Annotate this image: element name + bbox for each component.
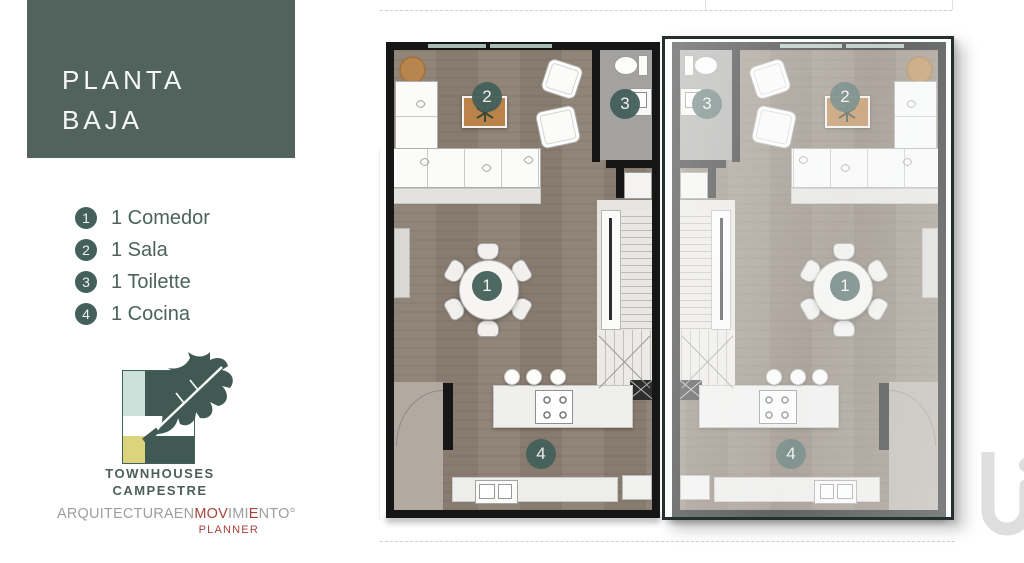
round-rug — [399, 56, 426, 84]
toilette-wall — [606, 160, 652, 168]
wall-bottom — [386, 510, 660, 518]
brand-planner-label: PLANNER — [57, 524, 263, 536]
marker-toilette: 3 — [610, 89, 640, 119]
legend-label: 1 Sala — [111, 239, 168, 262]
shaft-x-brace — [630, 380, 652, 400]
legend-item: 3 1 Toilette — [75, 266, 210, 298]
stair-railing-slit — [609, 218, 612, 320]
legend-label: 1 Comedor — [111, 207, 210, 230]
kitchen-sink-basin — [498, 484, 512, 499]
marker-cocina: 4 — [526, 439, 556, 469]
leaf-icon — [136, 350, 246, 442]
kitchen-sink-basin — [479, 484, 495, 499]
pendant-light — [550, 369, 566, 385]
toilette-wall-stub — [616, 168, 624, 198]
armchair — [534, 104, 581, 149]
legend-number-badge: 2 — [75, 239, 97, 261]
glass-overlay — [662, 36, 954, 520]
legend-number-badge: 3 — [75, 271, 97, 293]
legend: 1 1 Comedor 2 1 Sala 3 1 Toilette 4 1 Co… — [75, 202, 210, 330]
brand-segment: ARQUITECTURAEN — [57, 506, 194, 522]
construction-tick — [379, 150, 380, 520]
brand-segment: MOV — [194, 506, 228, 522]
brand-segment: IMI — [228, 506, 249, 522]
legend-label: 1 Cocina — [111, 303, 190, 326]
construction-tick — [705, 0, 706, 10]
pendant-light — [526, 369, 542, 385]
brand-segment: E — [249, 506, 259, 522]
title-block: PLANTA BAJA — [27, 0, 295, 158]
legend-item: 2 1 Sala — [75, 234, 210, 266]
legend-number-badge: 1 — [75, 207, 97, 229]
construction-tick — [952, 0, 953, 10]
title-line-2: BAJA — [62, 100, 185, 140]
brand-lockup: ARQUITECTURAENMOVIMIENTO° PLANNER — [57, 506, 263, 536]
closet — [624, 172, 652, 199]
logo-text-campestre: CAMPESTRE — [95, 483, 225, 498]
pendant-light — [504, 369, 520, 385]
construction-dash-line-bottom — [380, 541, 955, 542]
slide-canvas: PLANTA BAJA 1 1 Comedor 2 1 Sala 3 1 Toi… — [0, 0, 1024, 563]
marker-label: 3 — [620, 94, 629, 114]
wall-top — [386, 42, 660, 50]
brand-segment: ° — [290, 506, 296, 522]
title-line-1: PLANTA — [62, 60, 185, 100]
legend-item: 4 1 Cocina — [75, 298, 210, 330]
watermark-logo — [976, 452, 1024, 557]
marker-label: 2 — [482, 87, 491, 107]
window-glazing — [428, 44, 486, 48]
window-glazing — [490, 44, 552, 48]
wall-console — [394, 228, 410, 298]
marker-label: 4 — [536, 444, 545, 464]
corner-cabinet — [622, 475, 652, 500]
dining-chair — [477, 320, 499, 337]
page-title: PLANTA BAJA — [62, 60, 185, 140]
wall-left — [386, 42, 394, 518]
floor-plan-unit-left: 2 3 1 4 — [386, 42, 660, 518]
party-wall — [652, 42, 660, 518]
stair-treads — [621, 210, 652, 330]
dining-chair — [477, 243, 499, 260]
legend-item: 1 1 Comedor — [75, 202, 210, 234]
marker-sala: 2 — [472, 82, 502, 112]
toilet-tank — [638, 55, 648, 76]
brand-segment: NTO — [259, 506, 290, 522]
toilet-icon — [614, 56, 638, 75]
toilette-wall — [592, 50, 600, 162]
brand-wordmark: ARQUITECTURAENMOVIMIENTO° — [57, 506, 263, 522]
sofa-bottom-section — [390, 148, 541, 188]
marker-comedor: 1 — [472, 271, 502, 301]
legend-label: 1 Toilette — [111, 271, 191, 294]
legend-number-badge: 4 — [75, 303, 97, 325]
sofa-base — [390, 188, 541, 204]
cooktop — [535, 390, 573, 424]
construction-dash-line-top — [380, 10, 952, 11]
logo-text-townhouses: TOWNHOUSES — [95, 466, 225, 481]
door-stub-wall — [443, 383, 453, 450]
marker-label: 1 — [482, 276, 491, 296]
